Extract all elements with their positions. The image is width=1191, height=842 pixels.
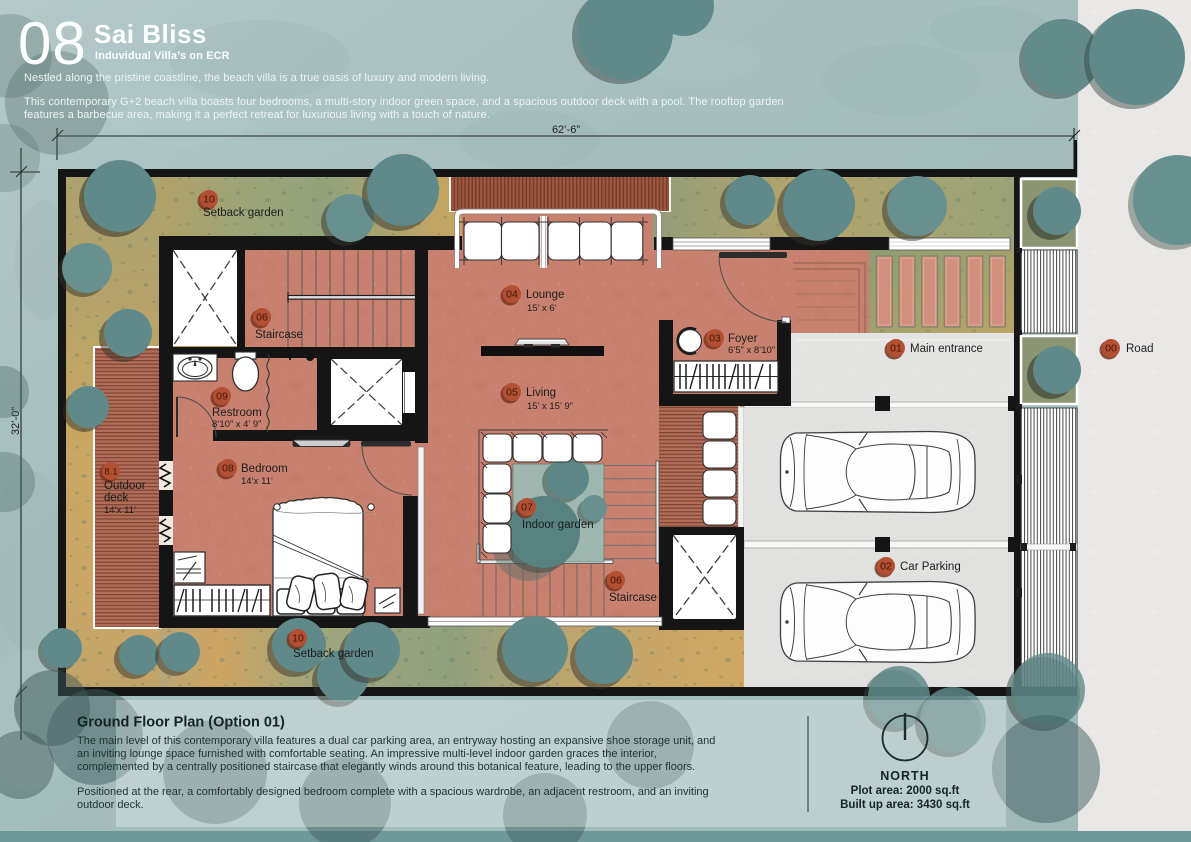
svg-text:07: 07 [521, 502, 533, 514]
svg-text:Ground Floor Plan (Option 01): Ground Floor Plan (Option 01) [77, 715, 285, 731]
svg-text:14’x 11’: 14’x 11’ [241, 476, 273, 487]
svg-text:Road: Road [1126, 343, 1154, 355]
svg-text:Foyer: Foyer [728, 333, 758, 345]
svg-text:Outdoor: Outdoor [104, 480, 146, 492]
svg-text:01: 01 [890, 343, 902, 355]
svg-text:09: 09 [216, 391, 228, 403]
svg-text:features a barbecue area, maki: features a barbecue area, making it a pe… [24, 109, 490, 121]
svg-text:Bedroom: Bedroom [241, 463, 288, 475]
svg-text:Induvidual Villa’s on ECR: Induvidual Villa’s on ECR [95, 50, 230, 62]
svg-text:Indoor garden: Indoor garden [522, 519, 594, 531]
svg-text:08: 08 [222, 463, 234, 475]
svg-text:Staircase: Staircase [255, 329, 303, 341]
svg-text:deck: deck [104, 492, 129, 504]
svg-text:Lounge: Lounge [526, 289, 564, 301]
svg-text:62’-6”: 62’-6” [552, 124, 580, 136]
svg-text:10: 10 [292, 633, 304, 645]
svg-text:05: 05 [506, 387, 518, 399]
svg-text:an inviting lounge space furni: an inviting lounge space furnished with … [77, 748, 657, 760]
svg-text:8.1: 8.1 [104, 467, 117, 478]
svg-text:Staircase: Staircase [609, 592, 657, 604]
svg-text:15’ x 6’: 15’ x 6’ [527, 303, 557, 314]
svg-text:The main level of this contemp: The main level of this contemporary vill… [77, 735, 715, 747]
svg-text:00: 00 [1105, 343, 1117, 355]
svg-text:06: 06 [610, 575, 622, 587]
svg-text:Living: Living [526, 387, 556, 399]
svg-text:This contemporary G+2 beach vi: This contemporary G+2 beach villa boasts… [24, 96, 784, 108]
svg-text:complemented by a centrally po: complemented by a centrally positioned s… [77, 761, 695, 773]
svg-text:Car Parking: Car Parking [900, 561, 961, 573]
svg-text:Positioned at the rear, a comf: Positioned at the rear, a comfortably de… [77, 786, 709, 798]
svg-text:06: 06 [256, 312, 268, 324]
svg-text:outdoor deck.: outdoor deck. [77, 799, 144, 811]
svg-text:10: 10 [203, 194, 215, 206]
svg-text:6’5” x 8’10”: 6’5” x 8’10” [728, 345, 775, 356]
svg-text:Main entrance: Main entrance [910, 343, 983, 355]
svg-text:04: 04 [506, 289, 518, 301]
svg-text:Plot area: 2000 sq.ft: Plot area: 2000 sq.ft [851, 785, 960, 797]
svg-text:15’ x 15’ 9”: 15’ x 15’ 9” [527, 401, 573, 412]
svg-text:Built up area: 3430 sq.ft: Built up area: 3430 sq.ft [840, 799, 970, 811]
svg-text:14’x 11’: 14’x 11’ [104, 505, 136, 516]
svg-text:Restroom: Restroom [212, 407, 262, 419]
svg-text:Setback garden: Setback garden [293, 648, 374, 660]
svg-text:02: 02 [880, 561, 892, 573]
svg-text:Setback garden: Setback garden [203, 207, 284, 219]
svg-text:Nestled along the pristine coa: Nestled along the pristine coastline, th… [24, 72, 489, 84]
svg-text:8’10” x 4’ 9”: 8’10” x 4’ 9” [212, 419, 261, 430]
svg-text:NORTH: NORTH [880, 769, 929, 783]
svg-text:03: 03 [709, 333, 721, 345]
svg-text:Sai Bliss: Sai Bliss [94, 19, 207, 49]
svg-text:08: 08 [18, 10, 87, 77]
